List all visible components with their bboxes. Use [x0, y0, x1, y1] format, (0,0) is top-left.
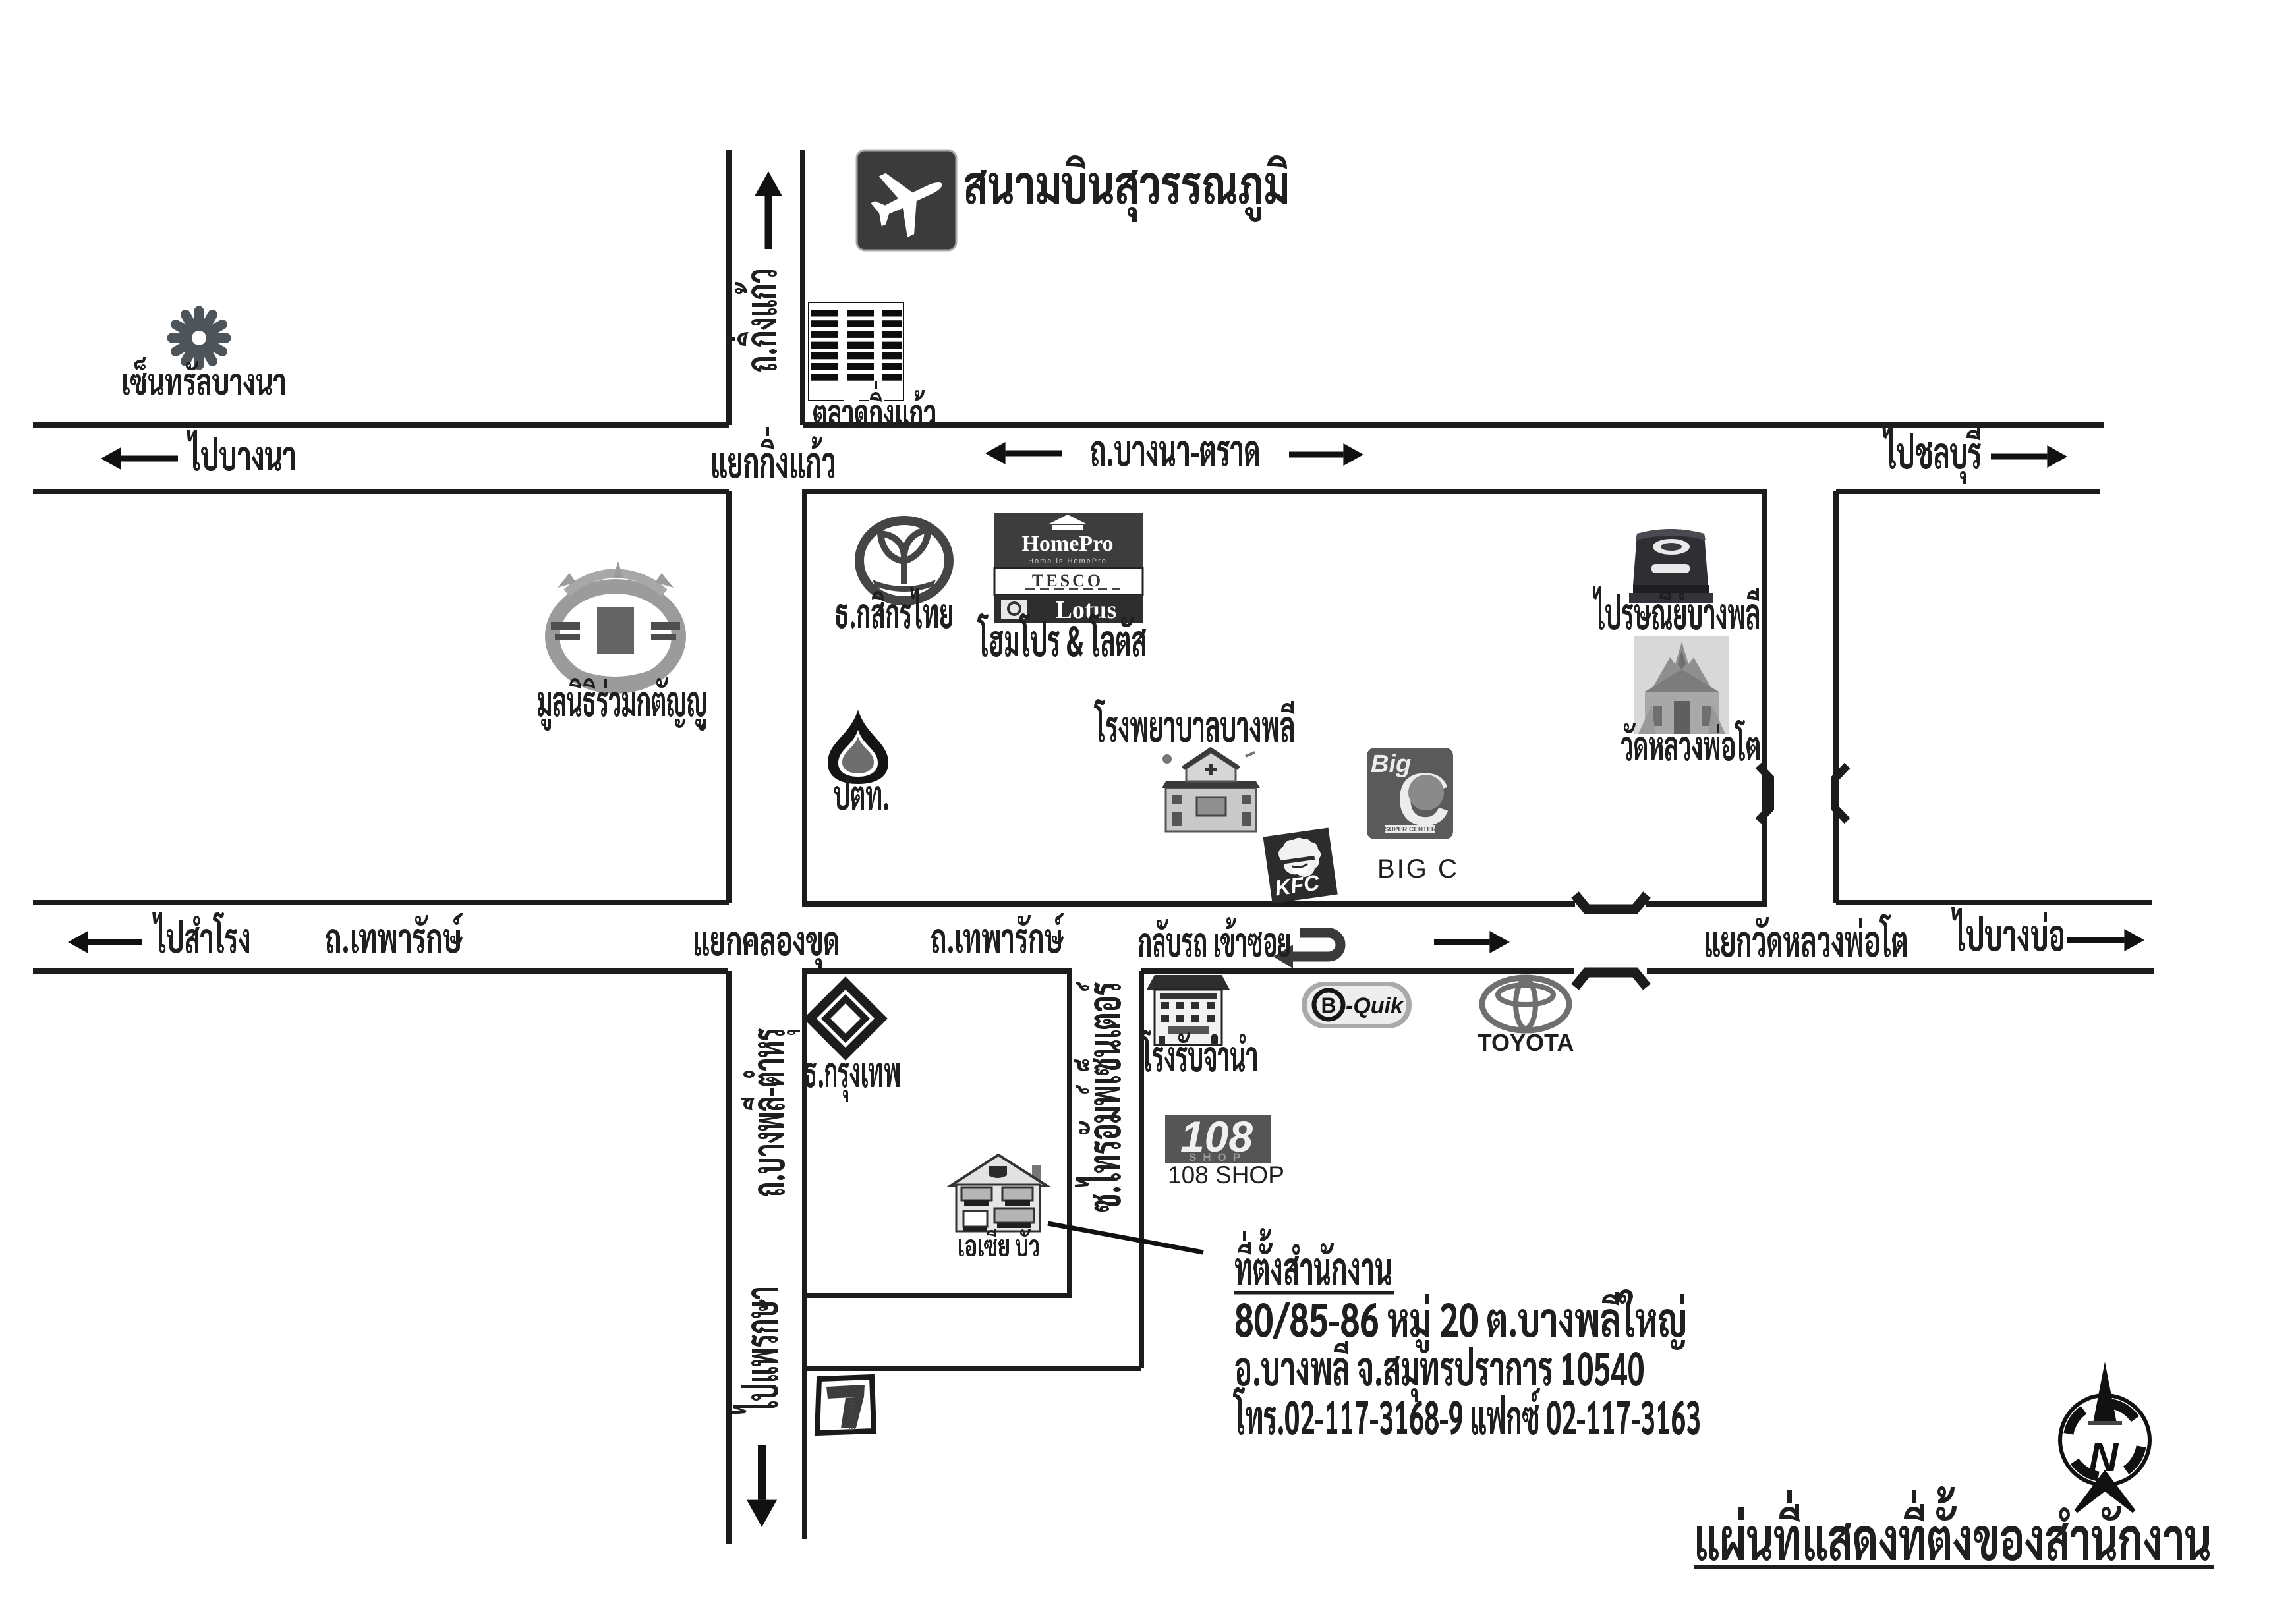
svg-text:TESCO: TESCO — [1032, 571, 1103, 590]
svg-text:BIG C: BIG C — [1377, 854, 1459, 883]
svg-text:Lotus: Lotus — [1056, 596, 1117, 624]
svg-text:ELEVEN: ELEVEN — [847, 1399, 857, 1431]
svg-text:N: N — [2089, 1435, 2119, 1480]
svg-text:HomePro: HomePro — [1021, 532, 1113, 556]
svg-text:B: B — [1321, 993, 1336, 1017]
svg-text:Home is HomePro: Home is HomePro — [1028, 557, 1107, 565]
svg-text:TOYOTA: TOYOTA — [1478, 1029, 1574, 1056]
svg-text:SUPER CENTER: SUPER CENTER — [1385, 826, 1437, 833]
svg-text:-Quik: -Quik — [1346, 993, 1404, 1019]
svg-text:108 SHOP: 108 SHOP — [1168, 1161, 1284, 1189]
